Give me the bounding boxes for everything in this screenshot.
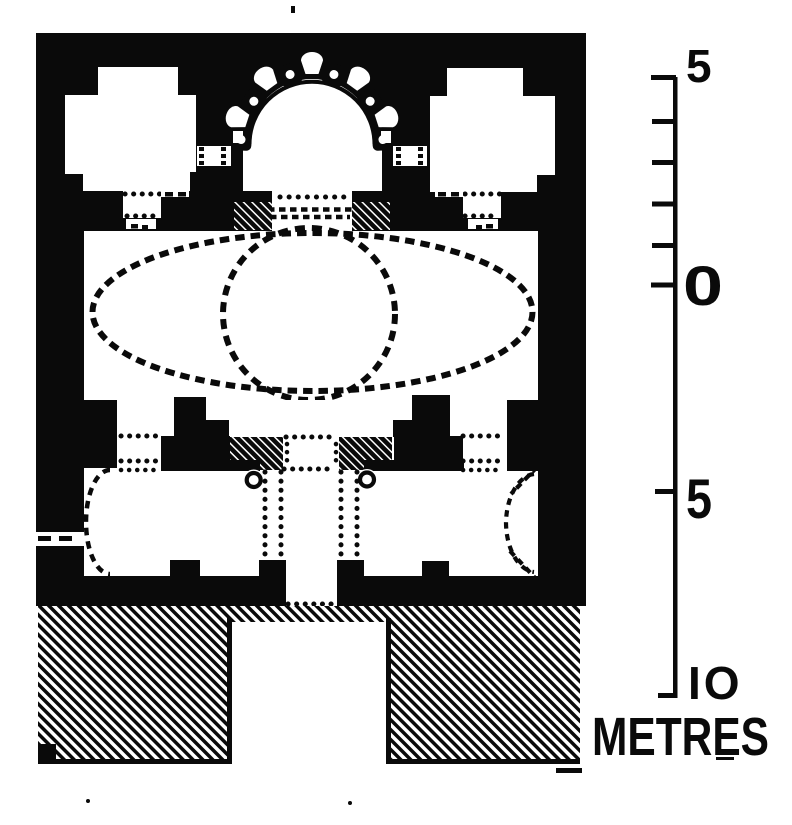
svg-text:5: 5 <box>686 40 712 92</box>
svg-text:0: 0 <box>683 254 723 317</box>
svg-text:5: 5 <box>686 467 712 530</box>
svg-text:METRES: METRES <box>592 707 769 767</box>
svg-text:IO: IO <box>688 657 743 709</box>
